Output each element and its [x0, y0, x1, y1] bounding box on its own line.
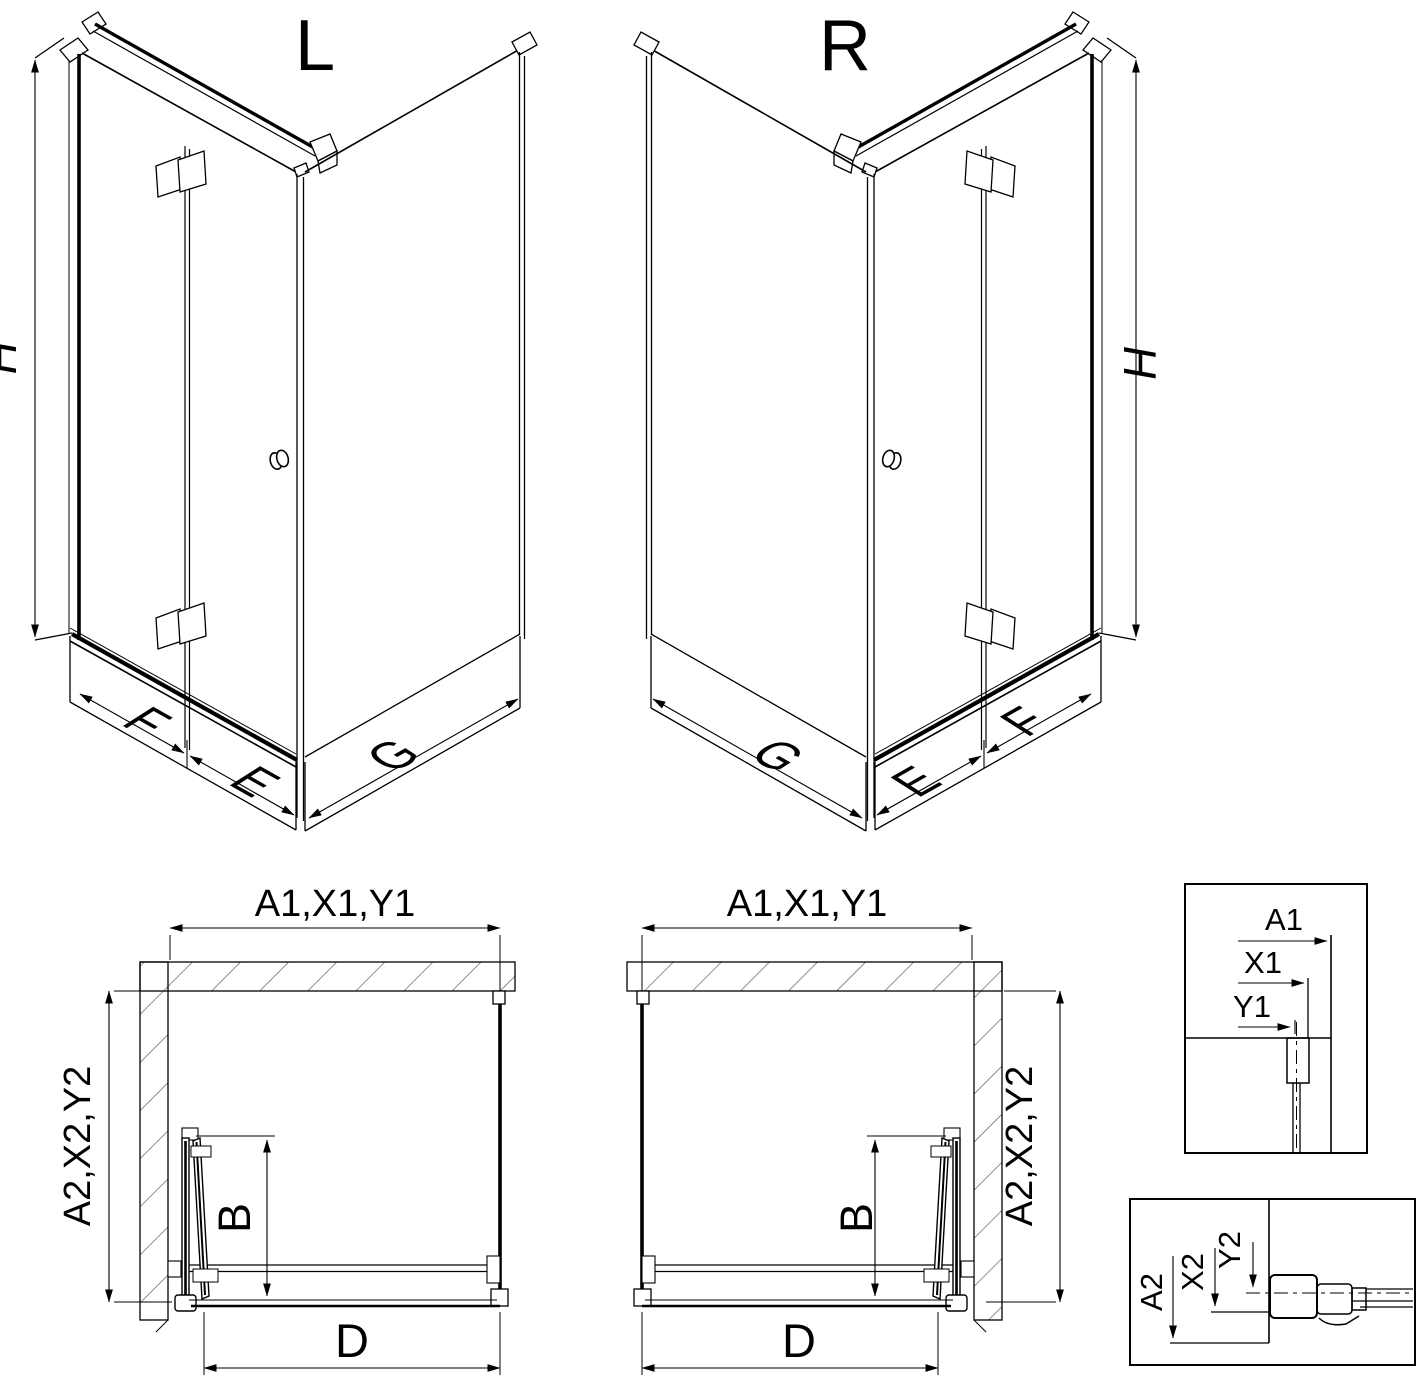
plan-right-dim-entry: D: [782, 1314, 816, 1367]
detail-depth-x2: X2: [1175, 1253, 1210, 1291]
detail-width-y1: Y1: [1233, 989, 1271, 1024]
wall-hatch-top: [140, 962, 515, 991]
iso-right-dim-h: H: [1114, 342, 1166, 384]
shower-enclosure-diagram: L H F E G R H F E G A1,X1,Y1 A2,X2,Y2 B …: [0, 0, 1426, 1397]
iso-view-right: R H F E G: [634, 6, 1166, 831]
iso-left-dim-f: F: [110, 700, 183, 745]
iso-view-left: L H F E G: [0, 6, 537, 831]
detail-depth-y2: Y2: [1212, 1231, 1247, 1269]
plan-view-right: A1,X1,Y1 A2,X2,Y2 B D: [627, 883, 1060, 1375]
detail-depth-a2: A2: [1134, 1273, 1169, 1311]
plan-right-dim-fold: B: [831, 1203, 882, 1233]
plan-left-dim-width: A1,X1,Y1: [255, 883, 416, 925]
technical-drawing-page: L H F E G R H F E G A1,X1,Y1 A2,X2,Y2 B …: [0, 0, 1426, 1397]
detail-box-depth: A2 X2 Y2: [1130, 1199, 1415, 1365]
iso-right-dim-g: G: [738, 732, 817, 780]
plan-right-dim-width: A1,X1,Y1: [727, 883, 888, 925]
detail-width-a1: A1: [1265, 902, 1303, 937]
plan-left-dim-depth: A2,X2,Y2: [57, 1066, 99, 1227]
iso-left-dim-g: G: [354, 732, 433, 780]
detail-width-x1: X1: [1244, 945, 1282, 980]
iso-left-dim-e: E: [217, 759, 292, 805]
iso-left-title: L: [295, 6, 335, 86]
plan-left-dim-entry: D: [335, 1314, 369, 1367]
wall-hatch-left: [140, 962, 168, 1320]
detail-box-width: A1 X1 Y1: [1185, 884, 1367, 1153]
plan-right-dim-depth: A2,X2,Y2: [999, 1066, 1041, 1227]
iso-left-dim-h: H: [0, 336, 26, 378]
wall-hatch-right: [974, 962, 1002, 1320]
plan-left-dim-fold: B: [209, 1203, 260, 1233]
iso-right-dim-e: E: [879, 759, 954, 805]
plan-view-left: A1,X1,Y1 A2,X2,Y2 B D: [57, 883, 515, 1375]
iso-right-title: R: [819, 6, 871, 86]
wall-hatch-top: [627, 962, 1002, 991]
iso-right-dim-f: F: [988, 700, 1061, 745]
